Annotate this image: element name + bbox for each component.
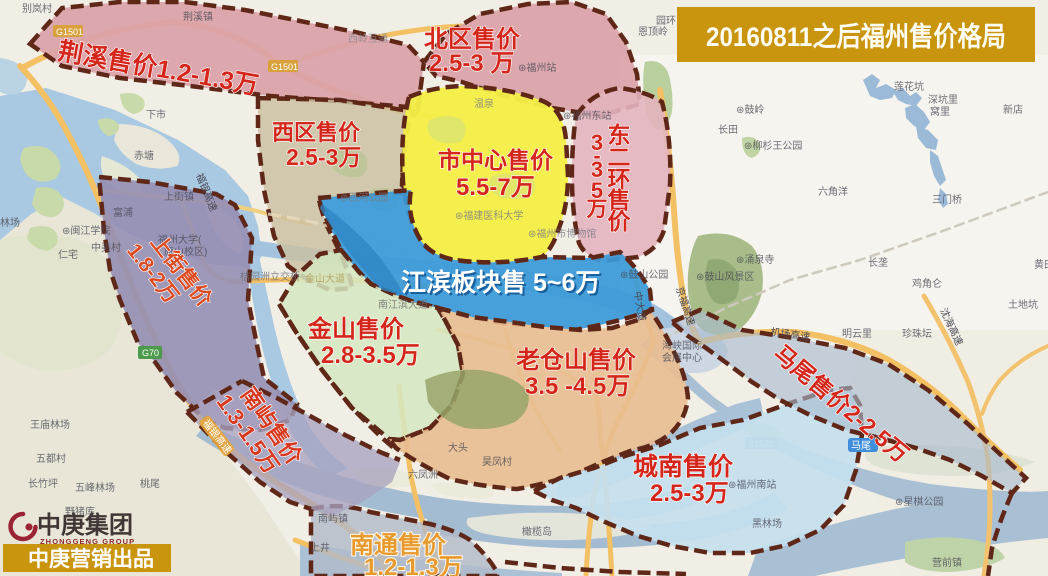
svg-text:价: 价 [608, 208, 632, 234]
svg-text:明云里: 明云里 [842, 328, 872, 340]
svg-text:新店: 新店 [1003, 103, 1023, 116]
svg-text:六角洋: 六角洋 [818, 185, 848, 198]
svg-text:20160811之后福州售价格局: 20160811之后福州售价格局 [706, 21, 1006, 52]
svg-text:⊛鼓山公园: ⊛鼓山公园 [620, 268, 668, 281]
svg-text:2.8-3.5万: 2.8-3.5万 [321, 342, 420, 369]
svg-text:土地坑: 土地坑 [1008, 298, 1038, 311]
svg-text:园环: 园环 [656, 15, 676, 27]
svg-text:⊛福州站: ⊛福州站 [518, 61, 556, 74]
svg-text:江滨板块售 5~6万: 江滨板块售 5~6万 [401, 268, 600, 297]
svg-text:五峰林场: 五峰林场 [75, 481, 115, 494]
svg-text:桃尾: 桃尾 [140, 477, 160, 490]
svg-text:深坑里: 深坑里 [928, 93, 958, 106]
svg-text:⊛柳杉王公园: ⊛柳杉王公园 [744, 139, 802, 152]
svg-text:⊛西河公园: ⊛西河公园 [340, 192, 388, 204]
svg-text:别岚村: 别岚村 [22, 2, 52, 15]
svg-text:上街镇: 上街镇 [164, 190, 194, 203]
svg-text:六凤洲: 六凤洲 [408, 469, 438, 481]
svg-text:西岭互通: 西岭互通 [348, 32, 388, 45]
svg-text:营前镇: 营前镇 [932, 556, 962, 569]
svg-text:橄榄岛: 橄榄岛 [522, 525, 552, 538]
svg-text:2.5-3万: 2.5-3万 [286, 144, 361, 170]
svg-text:西区售价: 西区售价 [272, 120, 361, 145]
svg-text:金山大道: 金山大道 [305, 272, 345, 285]
svg-text:荆溪镇: 荆溪镇 [183, 10, 213, 23]
svg-text:窝里: 窝里 [930, 105, 950, 118]
svg-text:珍珠坛: 珍珠坛 [902, 327, 932, 340]
svg-text:G70: G70 [142, 348, 159, 358]
svg-text:赤塘: 赤塘 [134, 149, 154, 162]
svg-text:恩顶岭: 恩顶岭 [638, 25, 668, 38]
svg-text:⊛福建医科大学: ⊛福建医科大学 [455, 209, 523, 222]
svg-text:海峡国际: 海峡国际 [662, 339, 702, 352]
svg-text:5.5-7万: 5.5-7万 [456, 174, 535, 201]
svg-text:中美村: 中美村 [91, 241, 121, 254]
svg-text:温泉: 温泉 [474, 97, 494, 110]
svg-text:长田: 长田 [718, 124, 738, 136]
svg-text:老仓山售价: 老仓山售价 [516, 346, 637, 374]
svg-text:⊛鼓岭: ⊛鼓岭 [736, 103, 764, 116]
svg-text:黄田: 黄田 [1034, 258, 1048, 271]
svg-text:南屿镇: 南屿镇 [318, 512, 348, 525]
svg-text:市中心售价: 市中心售价 [438, 147, 554, 173]
svg-text:三门桥: 三门桥 [932, 193, 962, 206]
svg-text:金山售价: 金山售价 [307, 315, 405, 343]
svg-text:2.5-3 万: 2.5-3 万 [429, 50, 514, 77]
svg-text:莲花坑: 莲花坑 [894, 80, 924, 93]
svg-text:林场: 林场 [0, 216, 20, 229]
svg-text:大头: 大头 [448, 441, 468, 454]
svg-text:下市: 下市 [146, 108, 166, 121]
svg-text:五都村: 五都村 [36, 452, 66, 465]
svg-text:鸡角仑: 鸡角仑 [912, 277, 942, 290]
svg-text:会展中心: 会展中心 [662, 351, 702, 364]
svg-text:王庙林场: 王庙林场 [30, 418, 70, 431]
svg-text:上井: 上井 [310, 541, 330, 554]
svg-text:昊凤村: 昊凤村 [482, 455, 512, 468]
svg-text:⊛鼓山风景区: ⊛鼓山风景区 [696, 270, 754, 283]
svg-text:⊛星棋公园: ⊛星棋公园 [895, 495, 943, 508]
svg-text:长竹坪: 长竹坪 [28, 477, 58, 490]
svg-text:⊛闽江学院: ⊛闽江学院 [62, 224, 110, 237]
svg-text:北区售价: 北区售价 [424, 25, 521, 53]
svg-text:桔园洲立交桥: 桔园洲立交桥 [240, 270, 300, 283]
svg-text:黑林场: 黑林场 [752, 517, 782, 530]
svg-text:G1501: G1501 [56, 27, 83, 37]
svg-text:万: 万 [586, 198, 608, 221]
svg-text:富浦: 富浦 [113, 206, 133, 219]
svg-text:南江滨大道: 南江滨大道 [378, 298, 428, 311]
svg-text:⊛涌泉寺: ⊛涌泉寺 [736, 253, 774, 266]
svg-text:⊛福州南站: ⊛福州南站 [728, 478, 776, 491]
svg-text:中庚营销出品: 中庚营销出品 [28, 547, 154, 571]
svg-text:3.5 -4.5万: 3.5 -4.5万 [525, 373, 630, 400]
svg-text:⊛福州市博物馆: ⊛福州市博物馆 [528, 227, 596, 240]
svg-text:中庚集团: 中庚集团 [37, 511, 133, 539]
svg-text:2.5-3万: 2.5-3万 [650, 480, 729, 507]
svg-text:1.2-1.3万: 1.2-1.3万 [364, 554, 463, 576]
svg-text:⊛福州东站: ⊛福州东站 [563, 109, 611, 122]
svg-text:长垄: 长垄 [868, 256, 888, 269]
svg-text:G1501: G1501 [271, 62, 298, 72]
svg-text:仁宅: 仁宅 [58, 248, 78, 261]
svg-text:城南售价: 城南售价 [633, 452, 734, 481]
